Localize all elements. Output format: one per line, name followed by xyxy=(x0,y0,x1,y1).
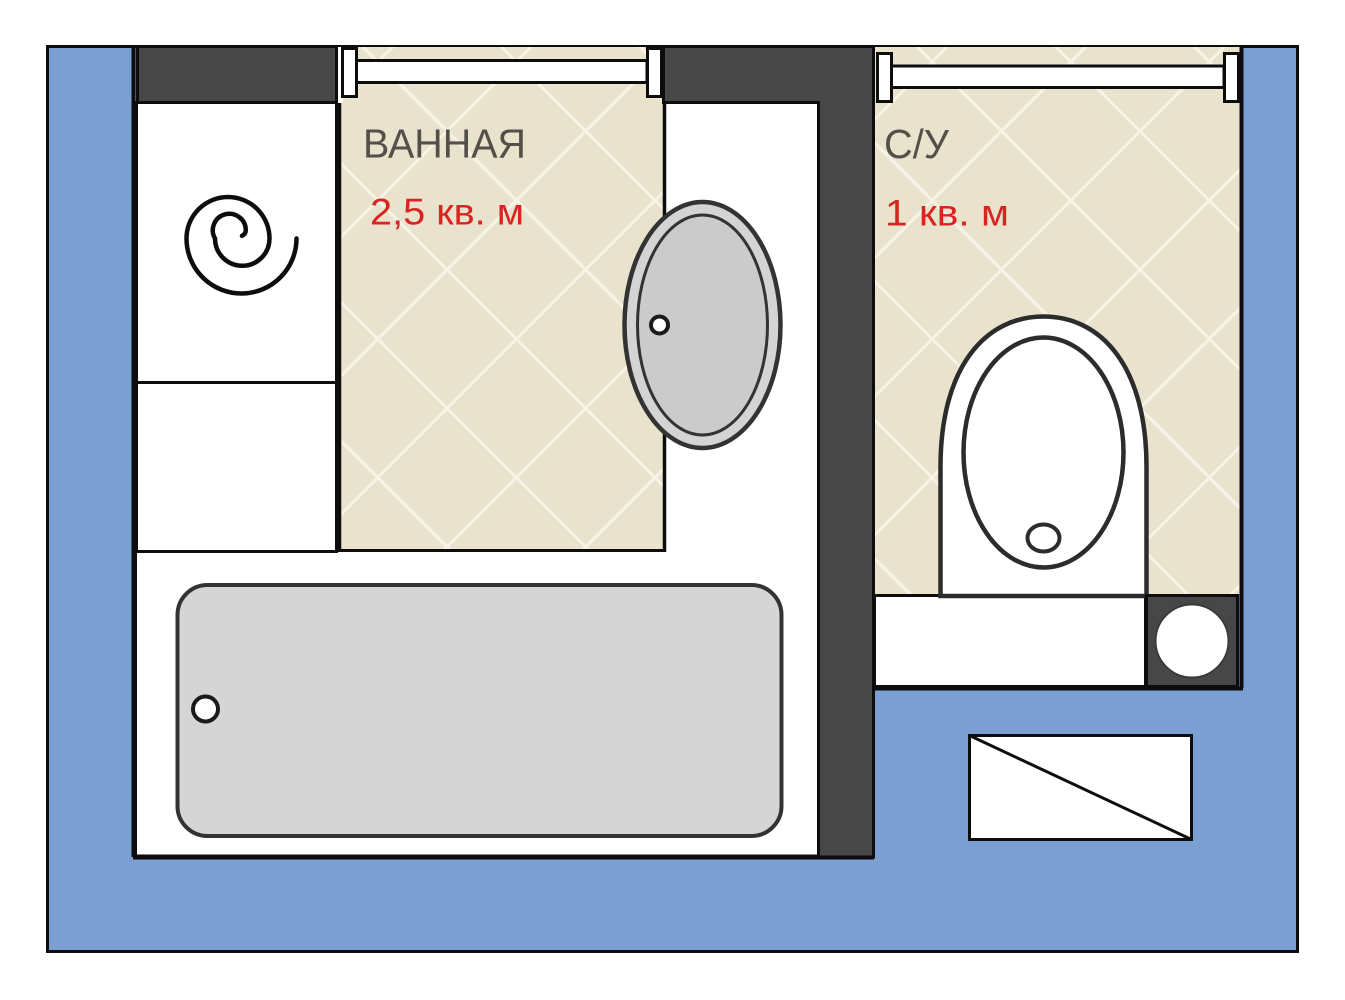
svg-text:1 кв. м: 1 кв. м xyxy=(885,192,1009,234)
svg-text:С/У: С/У xyxy=(884,121,950,167)
svg-text:2,5 кв. м: 2,5 кв. м xyxy=(370,191,524,233)
svg-text:ВАННАЯ: ВАННАЯ xyxy=(363,121,526,167)
